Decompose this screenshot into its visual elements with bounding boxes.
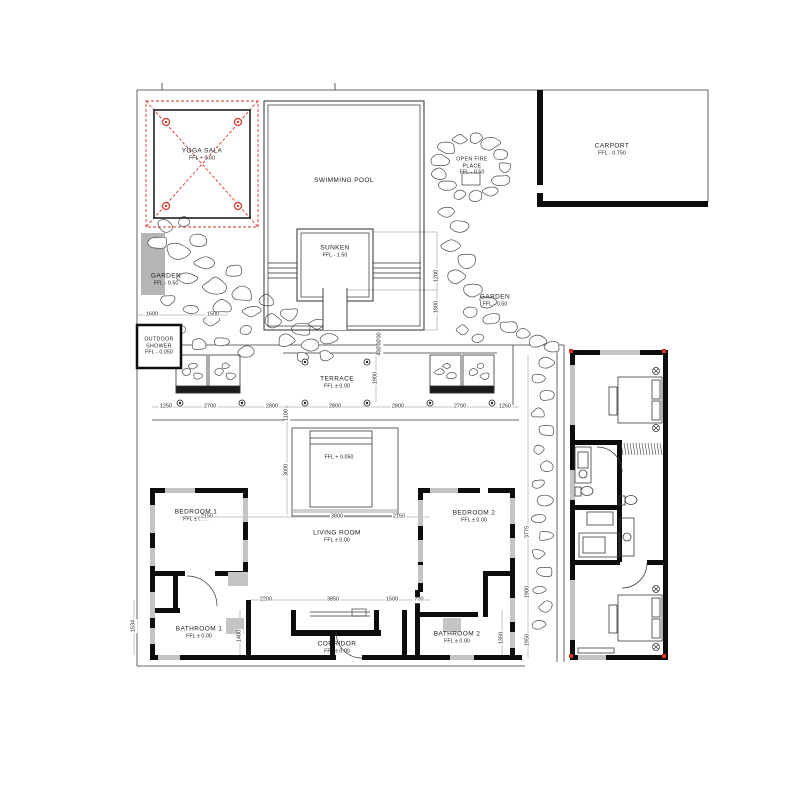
pond xyxy=(292,428,398,516)
garden-stones xyxy=(148,133,559,629)
wardrobe-hatch xyxy=(621,443,662,455)
fire-pit-hearth xyxy=(462,173,480,185)
swimming-pool-outline xyxy=(264,101,424,330)
door-arcs xyxy=(187,576,362,658)
floor-plan: YOGA SALA FFL + 0.60 SWIMMING POOL SUNKE… xyxy=(0,0,800,800)
terrace-planters xyxy=(176,355,494,393)
plan-linework xyxy=(0,0,800,800)
outdoor-shower-box xyxy=(137,325,181,368)
carport-walls xyxy=(537,90,708,207)
ceiling-symbols xyxy=(653,368,660,651)
yoga-sala xyxy=(146,101,258,227)
door-openings xyxy=(185,571,362,660)
kitchen-counter xyxy=(310,609,370,616)
